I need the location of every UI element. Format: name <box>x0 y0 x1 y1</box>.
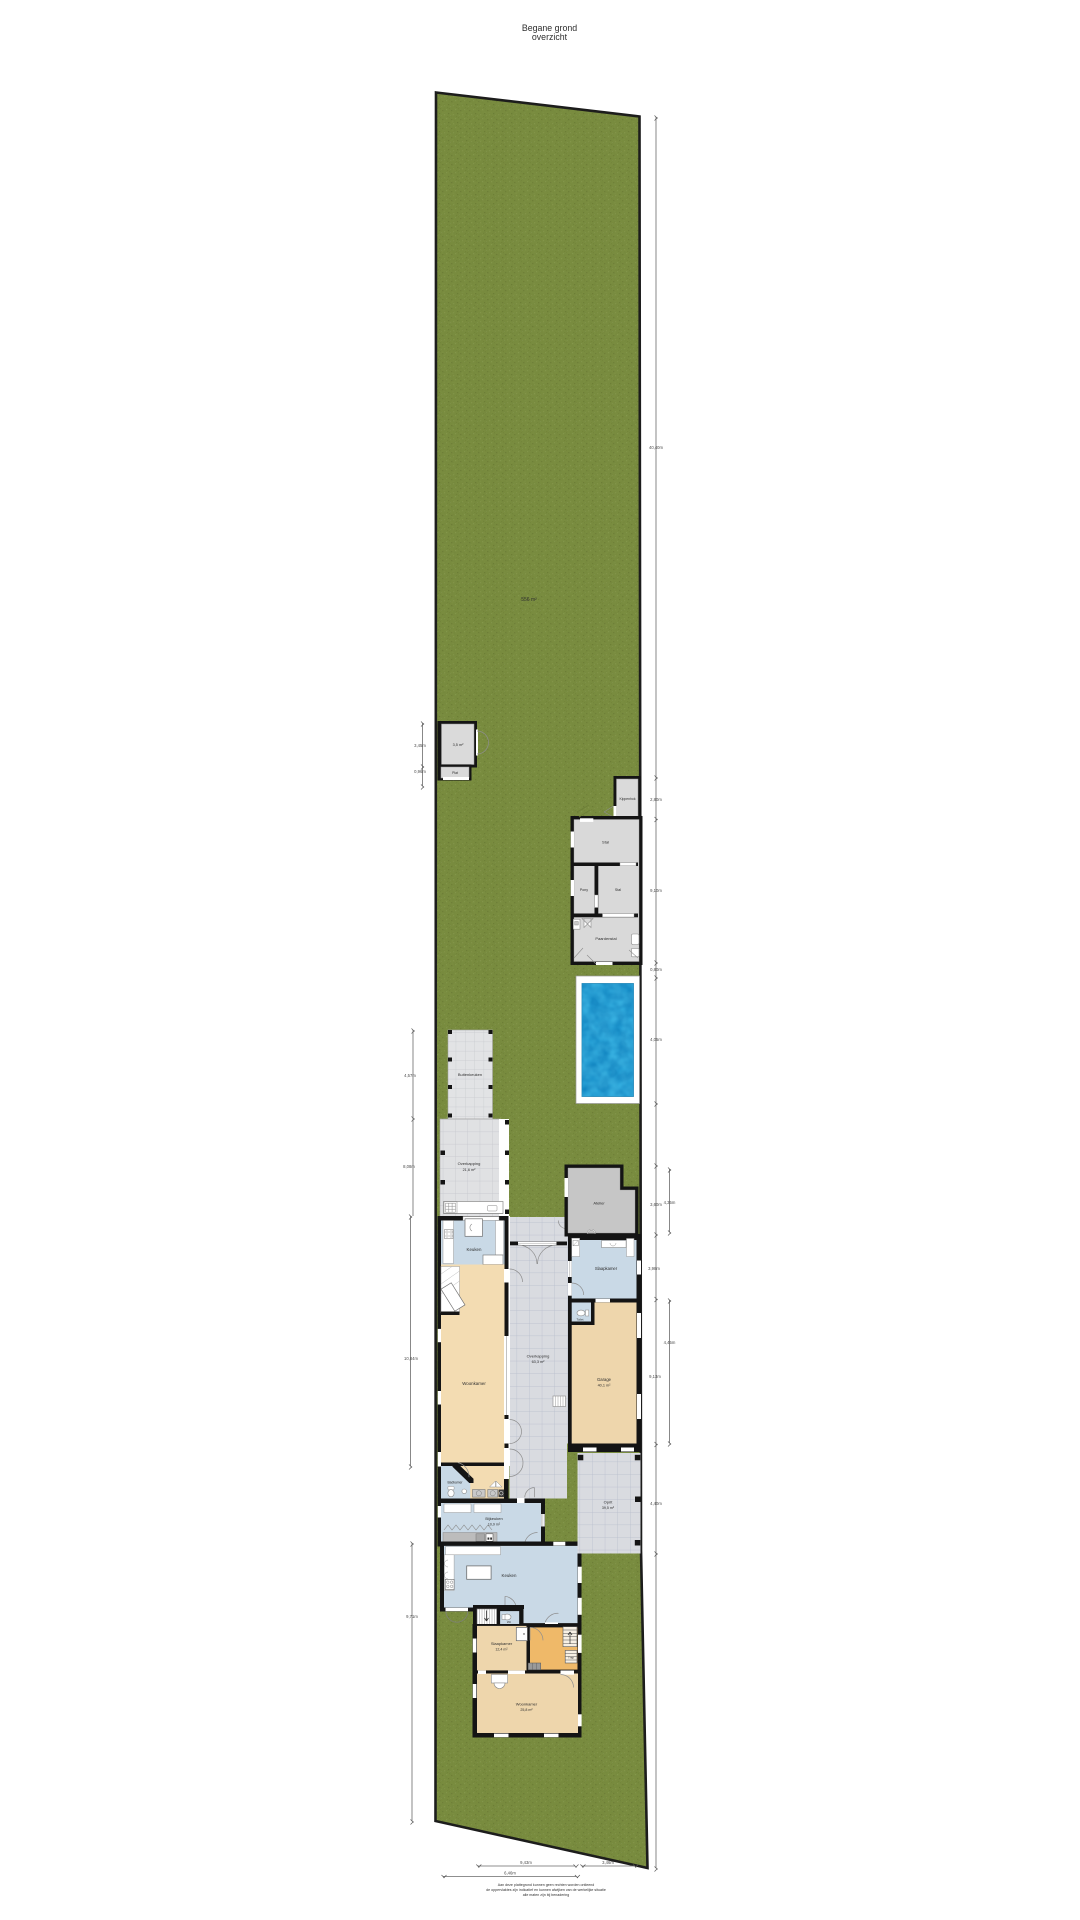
svg-text:Paardenstal: Paardenstal <box>595 936 616 941</box>
svg-text:4,35m: 4,35m <box>664 1200 676 1205</box>
svg-text:Wc: Wc <box>507 1620 512 1624</box>
svg-text:10,84m: 10,84m <box>404 1356 418 1361</box>
svg-text:3,46m: 3,46m <box>602 1860 614 1865</box>
svg-text:Atelier: Atelier <box>593 1201 605 1206</box>
svg-text:overzicht: overzicht <box>532 32 568 42</box>
svg-text:3,60m: 3,60m <box>650 1202 662 1207</box>
svg-text:4,40m: 4,40m <box>650 1501 662 1506</box>
svg-text:10,9 m²: 10,9 m² <box>488 1523 501 1527</box>
svg-text:Keuken: Keuken <box>467 1247 482 1252</box>
svg-text:63,3 m²: 63,3 m² <box>532 1360 546 1364</box>
svg-text:40,40m: 40,40m <box>649 445 663 450</box>
svg-text:39,5 m²: 39,5 m² <box>602 1506 615 1510</box>
svg-text:2,80m: 2,80m <box>650 797 662 802</box>
svg-text:40,1 m²: 40,1 m² <box>598 1384 612 1388</box>
svg-text:Toilet: Toilet <box>576 1318 583 1322</box>
svg-text:9,71m: 9,71m <box>406 1614 418 1619</box>
svg-text:Trap: Trap <box>568 1656 574 1660</box>
svg-text:Stal: Stal <box>615 888 621 892</box>
svg-text:Overkapping: Overkapping <box>458 1161 481 1166</box>
svg-text:556 m²: 556 m² <box>521 597 537 603</box>
svg-text:Buitenkeuken: Buitenkeuken <box>458 1072 482 1077</box>
svg-text:alle maten zijn bij benadering: alle maten zijn bij benadering <box>523 1893 570 1897</box>
svg-text:4,05m: 4,05m <box>650 1037 662 1042</box>
svg-text:21,6 m²: 21,6 m² <box>463 1168 477 1172</box>
svg-text:Overkapping: Overkapping <box>527 1354 550 1359</box>
svg-text:Stal: Stal <box>602 840 609 845</box>
svg-text:Pony: Pony <box>580 888 588 892</box>
svg-text:9,10m: 9,10m <box>650 888 662 893</box>
svg-text:0,96m: 0,96m <box>414 769 426 774</box>
svg-text:Slaapkamer: Slaapkamer <box>595 1266 618 1271</box>
svg-text:9,13m: 9,13m <box>649 1374 661 1379</box>
svg-text:12,4 m²: 12,4 m² <box>495 1648 508 1652</box>
svg-text:Woonkamer: Woonkamer <box>462 1381 486 1386</box>
svg-text:0,80m: 0,80m <box>650 967 662 972</box>
svg-text:Plat: Plat <box>452 771 458 775</box>
svg-text:8,08m: 8,08m <box>403 1164 415 1169</box>
svg-text:Woonkamer: Woonkamer <box>516 1702 538 1707</box>
svg-text:Keuken: Keuken <box>502 1573 517 1578</box>
svg-text:3,45m: 3,45m <box>414 743 426 748</box>
svg-text:3,98m: 3,98m <box>648 1266 660 1271</box>
svg-text:Oprit: Oprit <box>604 1500 614 1505</box>
svg-text:25,8 m²: 25,8 m² <box>520 1708 533 1712</box>
svg-text:4,57m: 4,57m <box>404 1073 416 1078</box>
svg-text:Aan deze plattegrond kunnen ge: Aan deze plattegrond kunnen geen rechten… <box>498 1883 595 1887</box>
svg-text:9,43m: 9,43m <box>520 1860 532 1865</box>
svg-text:Badkamer: Badkamer <box>447 1480 463 1484</box>
svg-text:de oppervlaktes zijn indicatie: de oppervlaktes zijn indicatief en kunne… <box>486 1888 606 1892</box>
svg-text:4,45m: 4,45m <box>664 1340 676 1345</box>
svg-text:Garage: Garage <box>597 1377 612 1382</box>
svg-text:6,46m: 6,46m <box>504 1871 516 1876</box>
svg-text:Kippenhok: Kippenhok <box>619 797 635 801</box>
svg-text:Slaapkamer: Slaapkamer <box>491 1641 513 1646</box>
svg-text:3,5 m²: 3,5 m² <box>453 743 464 747</box>
svg-text:Bijkeuken: Bijkeuken <box>485 1516 502 1521</box>
